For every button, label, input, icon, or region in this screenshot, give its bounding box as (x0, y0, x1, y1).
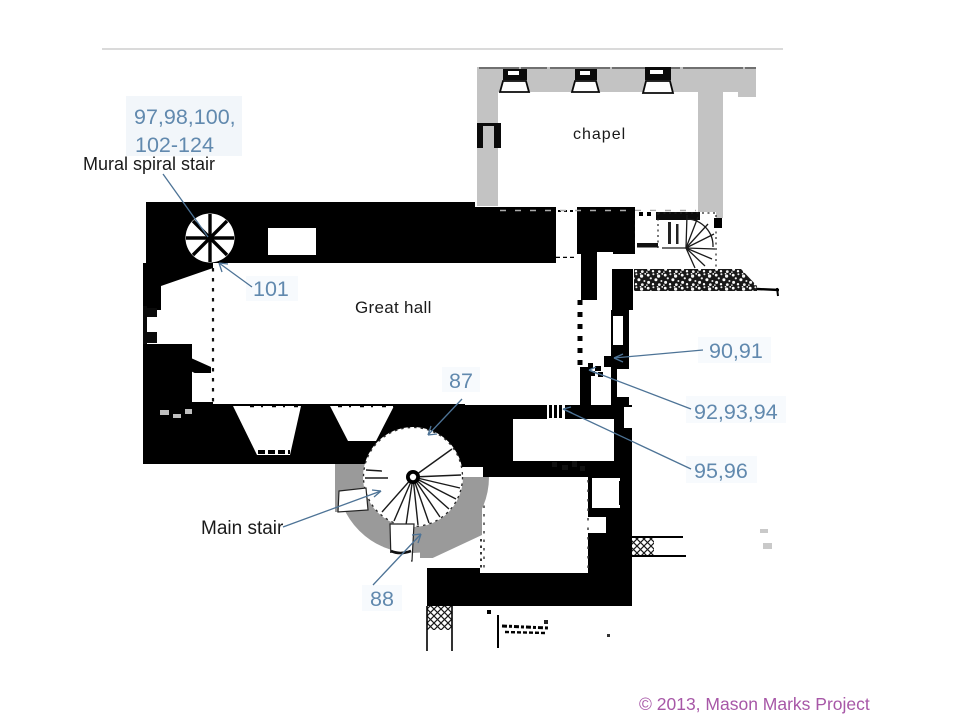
svg-text:chapel: chapel (573, 126, 626, 143)
svg-text:Main stair: Main stair (201, 518, 284, 539)
svg-text:92,93,94: 92,93,94 (694, 400, 778, 424)
svg-text:95,96: 95,96 (694, 459, 748, 483)
svg-text:87: 87 (449, 369, 473, 393)
svg-text:90,91: 90,91 (709, 339, 763, 363)
svg-text:© 2013, Mason Marks Project: © 2013, Mason Marks Project (639, 694, 870, 714)
svg-text:97,98,100,: 97,98,100, (134, 105, 236, 129)
svg-text:Great hall: Great hall (355, 298, 432, 317)
svg-text:101: 101 (253, 277, 289, 301)
svg-text:Mural spiral stair: Mural spiral stair (83, 154, 215, 174)
svg-text:88: 88 (370, 587, 394, 611)
